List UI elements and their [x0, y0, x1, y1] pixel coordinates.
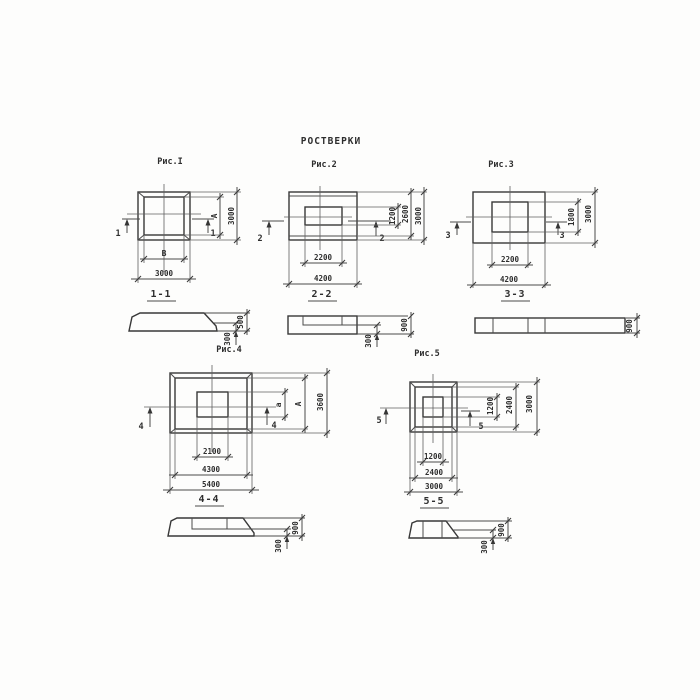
fig2-label: Рис.2 — [311, 160, 337, 170]
fig4-section-slab-dim: 300 — [274, 539, 283, 553]
fig5-section-slab-dim: 300 — [480, 540, 489, 554]
fig2-cut-lines — [262, 221, 391, 236]
fig5-outer-height-dim: 3000 — [525, 394, 534, 413]
fig4-section-view: 900 300 — [168, 514, 305, 553]
fig4-corner-bevels — [170, 373, 252, 433]
fig4-plan: 4 4 а А 3600 2100 4300 5400 4-4 — [138, 365, 330, 506]
fig2-section-height-dim: 900 — [400, 318, 409, 332]
fig3-marker-right: 3 — [559, 231, 564, 241]
figure-5: Рис.5 5 5 1200 2400 3000 1200 2400 3000 … — [376, 349, 540, 554]
fig4-frame-height-dim: А — [294, 401, 303, 406]
fig5-section-ref: 5-5 — [423, 496, 444, 507]
fig1-section-height-dim: 500 — [236, 315, 245, 329]
grillage-drawing: РОСТВЕРКИ Рис.I 1 1 В 3000 А 3000 1-1 — [0, 0, 700, 700]
fig1-section-ref: 1-1 — [150, 289, 171, 300]
fig4-marker-right: 4 — [271, 421, 276, 431]
fig3-marker-left: 3 — [445, 231, 450, 241]
fig4-label: Рис.4 — [216, 345, 242, 355]
fig4-frame-rect — [175, 378, 247, 429]
fig5-section-profile — [409, 521, 458, 538]
fig5-dim-lines — [404, 377, 537, 492]
fig5-section-joints — [423, 521, 442, 538]
fig1-opening-width-dim: В — [162, 249, 167, 258]
fig1-outer-height-dim: 3000 — [227, 206, 236, 225]
fig3-plan: 3 3 1800 3000 2200 4200 3-3 — [445, 186, 598, 301]
fig5-section-height-dim: 900 — [497, 523, 506, 537]
fig3-outer-width-dim: 4200 — [500, 275, 519, 284]
fig3-opening-width-dim: 2200 — [501, 255, 520, 264]
fig3-outer-height-dim: 3000 — [584, 204, 593, 223]
fig2-marker-left: 2 — [257, 234, 262, 244]
fig5-frame-width-dim: 2400 — [425, 468, 444, 477]
figure-1: Рис.I 1 1 В 3000 А 3000 1-1 — [115, 157, 250, 346]
fig1-section-profile — [129, 313, 217, 331]
fig2-opening-height-dim: 1200 — [388, 206, 397, 225]
fig4-frame-width-dim: 4300 — [202, 465, 221, 474]
fig5-outer-rect — [410, 382, 457, 432]
figure-2: Рис.2 2 2 1200 2600 3000 2200 4200 2-2 — [257, 160, 427, 348]
fig4-outer-width-dim: 5400 — [202, 480, 221, 489]
fig4-marker-left: 4 — [138, 422, 143, 432]
fig2-opening-rect — [305, 207, 342, 225]
sheet-title: РОСТВЕРКИ — [301, 136, 361, 147]
fig2-edge-bands — [289, 196, 357, 236]
fig4-section-profile — [168, 518, 254, 536]
drawing-sheet: РОСТВЕРКИ Рис.I 1 1 В 3000 А 3000 1-1 — [0, 0, 700, 700]
fig1-outer-width-dim: 3000 — [155, 269, 174, 278]
fig3-opening-height-dim: 1800 — [567, 207, 576, 226]
fig4-outer-height-dim: 3600 — [316, 392, 325, 411]
fig4-opening-rect — [197, 392, 228, 417]
fig2-section-recess — [303, 316, 342, 325]
fig3-outer-rect — [473, 192, 545, 243]
fig3-cut-lines — [450, 222, 567, 235]
fig4-cut-lines — [150, 409, 267, 427]
fig3-section-profile — [475, 318, 625, 333]
fig2-cut-arrows — [267, 221, 379, 228]
fig2-outer-height-dim: 3000 — [414, 206, 423, 225]
fig3-centerlines — [466, 186, 552, 250]
fig4-opening-height-dim: а — [274, 402, 283, 407]
fig5-cut-arrows — [384, 408, 473, 418]
fig5-plan: 5 5 1200 2400 3000 1200 2400 3000 5-5 — [376, 374, 540, 508]
fig3-label: Рис.3 — [488, 160, 514, 170]
fig4-section-height-dim: 900 — [291, 521, 300, 535]
fig2-outer-rect — [289, 192, 357, 240]
fig3-section-ref: 3-3 — [504, 289, 525, 300]
fig4-cut-arrows — [148, 407, 270, 414]
fig2-upper-height-dim: 2600 — [401, 204, 410, 223]
fig1-section-view: 500 300 — [129, 309, 250, 346]
fig2-section-ref: 2-2 — [311, 289, 332, 300]
fig1-cut-lines — [122, 219, 214, 233]
fig3-dim-ticks — [470, 189, 598, 288]
fig5-marker-left: 5 — [376, 416, 381, 426]
fig2-opening-width-dim: 2200 — [314, 253, 333, 262]
fig3-section-height-dim: 900 — [625, 319, 634, 333]
fig3-section-joints — [493, 318, 545, 333]
fig5-label: Рис.5 — [414, 349, 440, 359]
fig4-outer-rect — [170, 373, 252, 433]
fig4-section-ref: 4-4 — [198, 494, 219, 505]
fig5-extension-lines — [410, 382, 540, 496]
fig1-section-slab-dim: 300 — [223, 332, 232, 346]
fig2-plan: 2 2 1200 2600 3000 2200 4200 2-2 — [257, 186, 427, 301]
fig1-marker-right: 1 — [210, 229, 215, 239]
fig5-corner-bevels — [410, 382, 457, 432]
fig1-opening-height-dim: А — [210, 213, 219, 218]
fig2-marker-right: 2 — [379, 234, 384, 244]
fig1-label: Рис.I — [157, 157, 183, 167]
fig2-section-slab-dim: 300 — [364, 334, 373, 348]
figure-3: Рис.3 3 3 1800 3000 2200 4200 3-3 900 — [445, 160, 640, 338]
fig5-frame-height-dim: 2400 — [505, 395, 514, 414]
fig5-opening-width-dim: 1200 — [424, 452, 443, 461]
fig5-section-view: 900 300 — [409, 517, 512, 554]
fig1-marker-left: 1 — [115, 229, 120, 239]
fig2-section-view: 900 300 — [288, 312, 414, 348]
fig4-section-recess — [192, 518, 227, 529]
fig3-section-view: 900 — [475, 313, 640, 338]
fig2-outer-width-dim: 4200 — [314, 274, 333, 283]
fig5-outer-width-dim: 3000 — [425, 482, 444, 491]
fig5-frame-rect — [415, 387, 452, 427]
figure-4: Рис.4 4 4 а А 3600 2100 4300 5400 4-4 — [138, 345, 330, 553]
fig4-opening-width-dim: 2100 — [203, 447, 222, 456]
fig1-plan: 1 1 В 3000 А 3000 1-1 — [115, 184, 241, 301]
fig5-opening-height-dim: 1200 — [486, 396, 495, 415]
